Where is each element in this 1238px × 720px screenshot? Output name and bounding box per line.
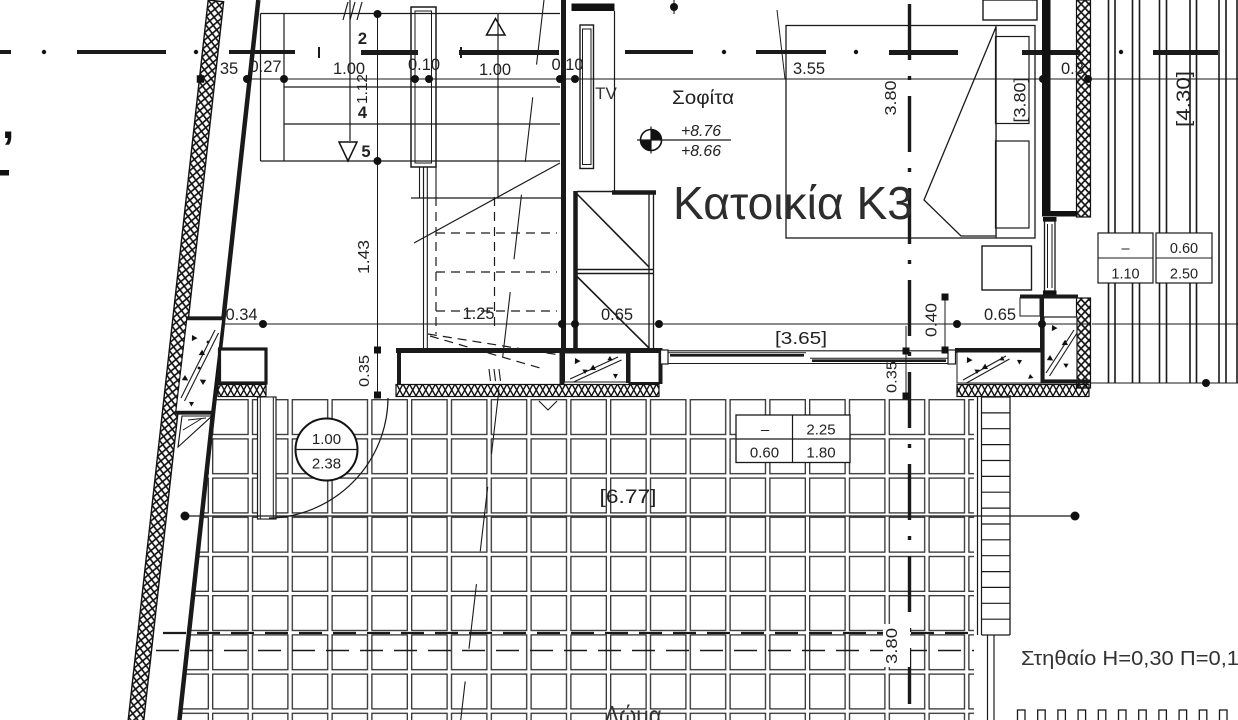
svg-text:0.34: 0.34 xyxy=(225,306,257,324)
svg-text:0.65: 0.65 xyxy=(984,306,1016,324)
svg-text:2: 2 xyxy=(358,30,367,48)
svg-text:1.10: 1.10 xyxy=(1111,267,1139,283)
svg-text:2.50: 2.50 xyxy=(1170,267,1198,283)
svg-text:5: 5 xyxy=(361,143,370,161)
svg-text:Στηθαίο Η=0,30 Π=0,1: Στηθαίο Η=0,30 Π=0,1 xyxy=(1021,647,1238,670)
svg-text:4: 4 xyxy=(358,104,368,122)
svg-text:0.3: 0.3 xyxy=(1061,60,1084,78)
svg-text:Κατοικία Κ3: Κατοικία Κ3 xyxy=(673,177,913,229)
svg-text:0.40: 0.40 xyxy=(924,303,941,337)
svg-text:2.25: 2.25 xyxy=(806,422,835,439)
svg-text:3.55: 3.55 xyxy=(793,60,825,78)
svg-text:0.35: 0.35 xyxy=(884,361,901,393)
svg-text:[3.65]: [3.65] xyxy=(775,328,827,348)
svg-text:35: 35 xyxy=(220,60,238,78)
svg-text:0.60: 0.60 xyxy=(750,445,779,462)
svg-text:3.80: 3.80 xyxy=(884,628,901,664)
svg-text:1.25: 1.25 xyxy=(462,305,494,323)
svg-text:0.65: 0.65 xyxy=(601,306,633,324)
svg-text:3.80: 3.80 xyxy=(883,80,900,115)
svg-text:–: – xyxy=(1121,241,1130,257)
svg-text:,: , xyxy=(2,99,14,148)
svg-text:Δώμα: Δώμα xyxy=(605,700,662,720)
svg-text:0.35: 0.35 xyxy=(356,355,373,387)
svg-text:2.38: 2.38 xyxy=(312,456,341,473)
svg-text:0.60: 0.60 xyxy=(1170,241,1198,257)
svg-text:+8.76: +8.76 xyxy=(681,123,721,140)
svg-text:1.43: 1.43 xyxy=(356,240,373,274)
svg-text:1.12: 1.12 xyxy=(354,74,371,104)
svg-text:1.00: 1.00 xyxy=(479,61,511,79)
svg-text:–: – xyxy=(761,422,770,439)
svg-text:Σοφίτα: Σοφίτα xyxy=(672,87,734,109)
svg-text:[3.80]: [3.80] xyxy=(1012,78,1030,123)
svg-text:+8.66: +8.66 xyxy=(681,143,721,160)
svg-text:1.00: 1.00 xyxy=(312,431,341,448)
svg-text:0.27: 0.27 xyxy=(249,58,281,76)
svg-text:0.10: 0.10 xyxy=(551,56,583,74)
svg-text:[6.77]: [6.77] xyxy=(600,487,657,508)
svg-text:0.10: 0.10 xyxy=(408,56,440,74)
svg-text:1.80: 1.80 xyxy=(806,445,835,462)
